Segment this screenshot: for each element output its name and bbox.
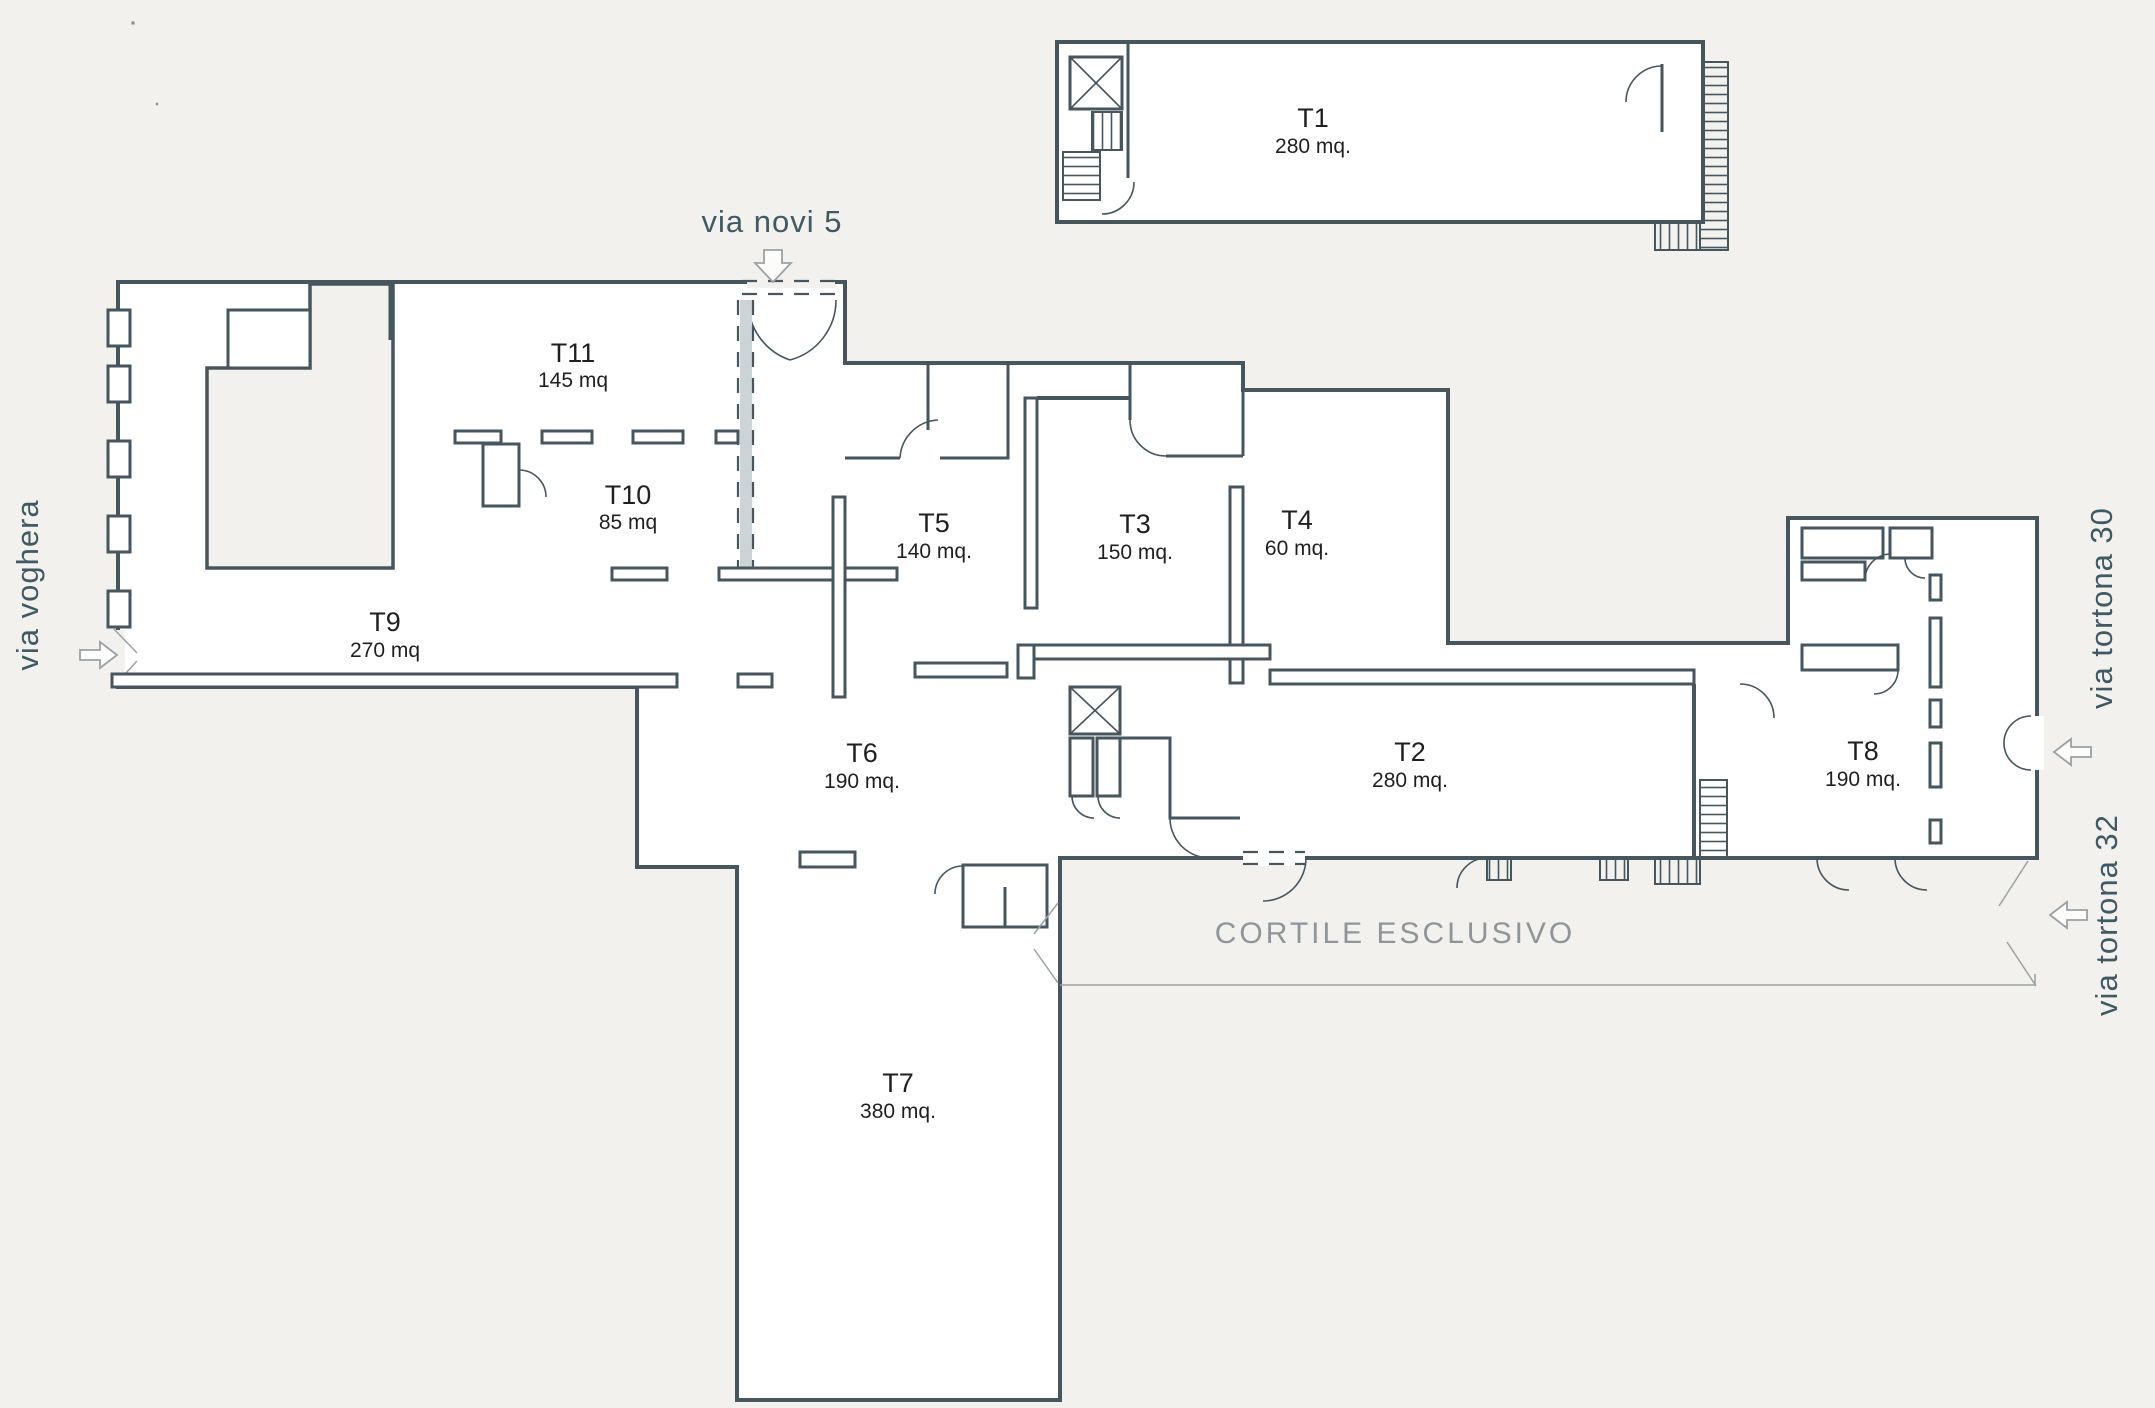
voghera-arrow-icon [80,642,117,668]
street-via-voghera: via voghera [10,499,45,670]
floor-plan: T1 280 mq. T2 280 mq. T3 150 mq. T4 60 m… [0,0,2155,1408]
t9-label: T9 [369,607,401,637]
t1-bottom-stairs [1655,222,1700,250]
t5-t3-divider [1025,398,1037,608]
t6-label: T6 [846,738,878,768]
building-t1 [1057,42,1728,250]
t1-area: 280 mq. [1275,135,1351,158]
main-building-outline [118,282,2037,1400]
t1-label: T1 [1297,103,1329,133]
t11-area: 145 mq [538,369,608,392]
floor-plan-canvas: T1 280 mq. T2 280 mq. T3 150 mq. T4 60 m… [0,0,2155,1408]
street-via-novi-5: via novi 5 [702,204,843,239]
t8-label: T8 [1847,736,1879,766]
back-stairs [1700,780,1727,858]
t1-outline [1057,42,1703,222]
t8-cortile-door [1817,858,1849,890]
street-via-tortona-32: via tortona 32 [2089,814,2124,1016]
cortile-door-arc [1457,858,1487,888]
speck [131,21,135,25]
t5-area: 140 mq. [896,540,972,563]
tortona30-arrow-icon [2054,739,2091,765]
t8-cortile-door [1895,858,1927,890]
t2-area: 280 mq. [1372,769,1448,792]
tortona32-arrow-icon [2050,902,2087,928]
t9-area: 270 mq [350,639,420,662]
t9-inner-room [228,310,310,368]
cortile-steps [1487,858,1511,880]
cortile-esclusivo-label: CORTILE ESCLUSIVO [1215,917,1576,950]
speck [156,103,159,106]
street-via-tortona-30: via tortona 30 [2084,507,2119,709]
t4-label: T4 [1281,505,1313,535]
t5-label: T5 [918,508,950,538]
t3-label: T3 [1119,509,1151,539]
t7-area: 380 mq. [860,1100,936,1123]
t1-stair-flight [1092,112,1122,150]
dashed-partition-strip [740,300,752,568]
t4-area: 60 mq. [1265,537,1329,560]
t3-area: 150 mq. [1097,541,1173,564]
cortile-steps [1600,858,1628,880]
t1-stair-flight [1063,152,1100,200]
back-steps [1655,858,1700,884]
t10-closet [483,444,519,506]
t10-label: T10 [605,480,652,510]
t6-area: 190 mq. [824,770,900,793]
t8-area: 190 mq. [1825,768,1901,791]
t2-label: T2 [1394,737,1426,767]
t8-entrance-gap [2030,716,2044,770]
t10-area: 85 mq [599,511,657,534]
t7-label: T7 [882,1068,914,1098]
t11-label: T11 [551,338,596,368]
